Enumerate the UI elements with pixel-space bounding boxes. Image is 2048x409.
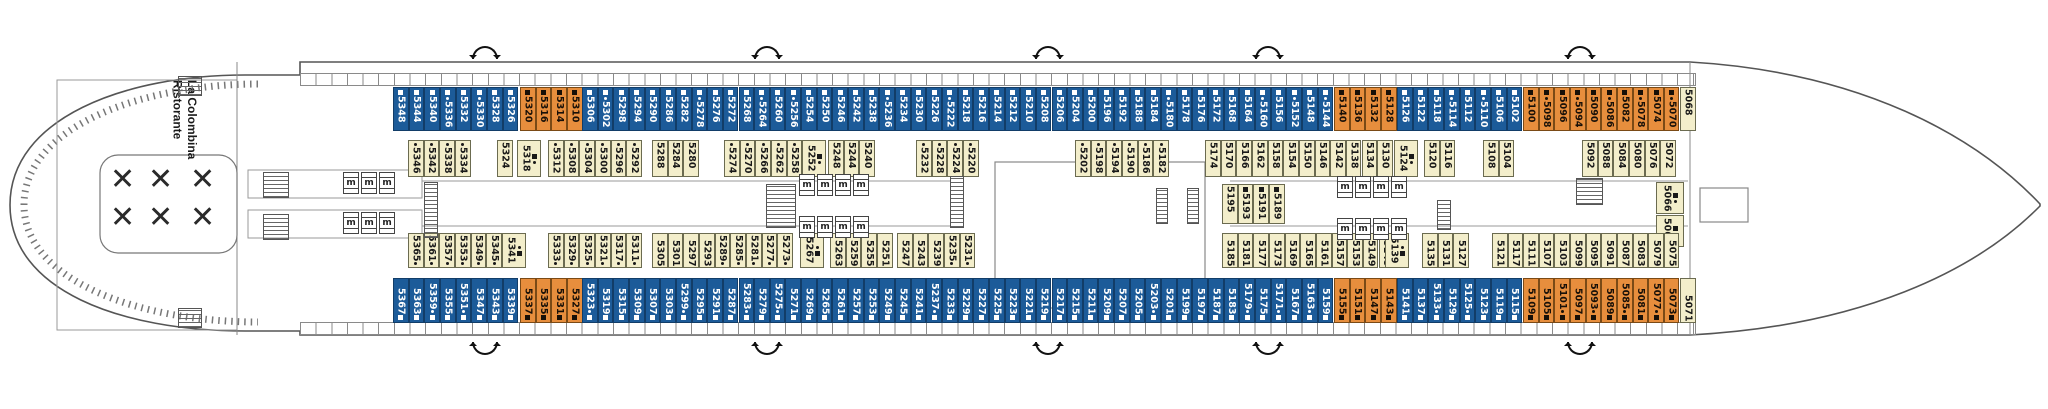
- cabin-number: 5267: [804, 237, 814, 263]
- dot-icon: [1144, 143, 1147, 146]
- cabin-number: 5209: [1102, 288, 1112, 314]
- dot-icon: [1261, 97, 1264, 100]
- cabin-number: 5218: [961, 96, 971, 122]
- square-icon: [477, 90, 482, 95]
- cabin-5289: 5289: [715, 233, 731, 268]
- cabin-icons: [697, 89, 702, 101]
- cabin-icons: [666, 314, 671, 321]
- square-icon: [1274, 187, 1279, 192]
- cabin-number: 5336: [443, 101, 453, 127]
- cabin-number: 5131: [1441, 240, 1451, 266]
- square-icon: [947, 315, 952, 320]
- cabin-5223: 5223: [1005, 278, 1021, 323]
- cabin-number: 5166: [1239, 142, 1249, 168]
- dot-icon: [1623, 310, 1626, 313]
- cabin-number: 5117: [1511, 240, 1521, 266]
- square-icon: [1622, 315, 1627, 320]
- cabin-icons: [1010, 314, 1015, 321]
- cabin-number: 5135: [1425, 240, 1435, 266]
- cabin-icons: [1496, 89, 1501, 96]
- cabin-5230: 5230: [911, 87, 927, 131]
- dot-icon: [617, 262, 620, 265]
- cabin-icons: [950, 261, 953, 266]
- dot-icon: [745, 310, 748, 313]
- elevator-icon: m: [1391, 218, 1407, 240]
- cabin-5325: 5325: [579, 233, 595, 268]
- cabin-icons: [587, 89, 592, 96]
- cabin-number: 5355: [443, 288, 453, 314]
- cabin-5164: 5164: [1239, 87, 1255, 131]
- cabin-5287: 5287: [723, 278, 739, 323]
- cabin-5070: 5070: [1664, 87, 1680, 131]
- cabin-number: 5108: [1486, 142, 1496, 168]
- cabin-5226: 5226: [926, 87, 942, 131]
- cabin-5209: 5209: [1098, 278, 1114, 323]
- cabin-5336: 5336: [440, 87, 456, 131]
- elevator-icon: m: [799, 174, 815, 196]
- cabin-number: 5169: [1288, 240, 1298, 266]
- cabin-5299: 5299: [676, 278, 692, 323]
- cabin-5266: 5266: [755, 140, 771, 177]
- dot-icon: [922, 143, 925, 146]
- cabin-number: 5256: [789, 101, 799, 127]
- cabin-number: 5203: [1148, 283, 1158, 309]
- cabin-5251: 5251: [877, 233, 893, 268]
- cabin-number: 5163: [1305, 283, 1315, 309]
- cabin-5339: 5339: [503, 278, 519, 323]
- cabin-number: 5292: [629, 147, 639, 173]
- square-icon: [1496, 315, 1501, 320]
- dot-icon: [969, 143, 972, 146]
- square-icon: [822, 315, 827, 320]
- cabin-icons: [1026, 314, 1031, 321]
- cabin-icons: [1409, 153, 1414, 165]
- cabin-5202: 5202: [1075, 140, 1091, 177]
- cabin-icons: [806, 89, 811, 96]
- cabin-5365: 5365: [408, 233, 424, 268]
- cabin-5111: 5111: [1523, 233, 1539, 268]
- square-icon: [1481, 90, 1486, 95]
- square-icon: [728, 315, 733, 320]
- cabin-icons: [1245, 89, 1250, 96]
- cabin-number: 5206: [1055, 96, 1065, 122]
- square-icon: [603, 90, 608, 95]
- cabin-number: 5325: [582, 235, 592, 261]
- cabin-icons: [1669, 89, 1674, 101]
- square-icon: [916, 315, 921, 320]
- cabin-number: 5294: [632, 96, 642, 122]
- cabin-icons: [1481, 89, 1486, 101]
- cabin-5096: 5096: [1554, 87, 1570, 131]
- cabin-icons: [1418, 89, 1423, 96]
- cabin-icons: [1434, 89, 1439, 96]
- cabin-5128: 5128: [1381, 87, 1397, 131]
- cabin-5184: 5184: [1145, 87, 1161, 131]
- square-icon: [728, 90, 733, 95]
- cabin-number: 5077: [1651, 283, 1661, 309]
- cabin-number: 5187: [1211, 288, 1221, 314]
- square-icon: [979, 315, 984, 320]
- cabin-icons: [1182, 314, 1187, 321]
- square-icon: [1400, 251, 1405, 256]
- cabin-icons: [838, 89, 843, 96]
- elevator-icon: m: [1373, 218, 1389, 240]
- square-icon: [430, 90, 435, 95]
- square-icon: [1307, 90, 1312, 95]
- cabin-number: 5363: [412, 288, 422, 314]
- dining-table-icon: ✕: [110, 203, 135, 233]
- cabin-5107: 5107: [1539, 233, 1555, 268]
- stairs-icon: [178, 308, 202, 328]
- square-icon: [557, 90, 562, 95]
- cabin-icons: [1243, 186, 1248, 193]
- cabin-number: 5201: [1164, 288, 1174, 314]
- cabin-5124: 5124: [1394, 140, 1418, 177]
- cabin-number: 5328: [490, 96, 500, 122]
- square-icon: [1673, 193, 1678, 198]
- square-icon: [1198, 90, 1203, 95]
- cabin-5146: 5146: [1315, 140, 1331, 177]
- square-icon: [572, 90, 577, 95]
- cabin-number: 5248: [831, 142, 841, 168]
- cabin-5106: 5106: [1491, 87, 1507, 131]
- cabin-5328: 5328: [487, 87, 503, 131]
- cabin-number: 5345: [489, 235, 499, 261]
- cabin-number: 5134: [1365, 142, 1375, 168]
- cabin-icons: [1465, 309, 1470, 321]
- square-icon: [1072, 315, 1077, 320]
- cabin-5079: 5079: [1648, 233, 1664, 268]
- cabin-icons: [461, 309, 466, 321]
- cabin-icons: [713, 314, 718, 321]
- dot-icon: [1670, 97, 1673, 100]
- stairs-icon: [178, 76, 202, 96]
- cabin-number: 5310: [570, 96, 580, 122]
- cabin-5163: 5163: [1302, 278, 1318, 323]
- cabin-number: 5112: [1463, 96, 1473, 122]
- cabin-5118: 5118: [1428, 87, 1444, 131]
- dot-icon: [586, 143, 589, 146]
- cabin-5305: 5305: [652, 233, 668, 268]
- cabin-icons: [1400, 245, 1405, 257]
- cabin-5288: 5288: [652, 140, 668, 177]
- cabin-5329: 5329: [564, 233, 580, 268]
- cabin-5168: 5168: [1224, 87, 1240, 131]
- cabin-icons: [1622, 89, 1627, 96]
- cabin-number: 5361: [427, 235, 437, 261]
- dot-icon: [1308, 310, 1311, 313]
- cabin-number: 5262: [774, 147, 784, 173]
- cabin-number: 5104: [1502, 142, 1512, 168]
- cabin-icons: [932, 309, 937, 321]
- cabin-5214: 5214: [989, 87, 1005, 131]
- cabin-number: 5179: [1242, 283, 1252, 309]
- cabin-5188: 5188: [1130, 87, 1146, 131]
- dot-icon: [461, 143, 464, 146]
- cabin-icons: [822, 89, 827, 96]
- cabin-number: 5150: [1302, 142, 1312, 168]
- square-icon: [1292, 90, 1297, 95]
- cabin-icons: [1575, 314, 1580, 321]
- square-icon: [666, 90, 671, 95]
- cabin-5343: 5343: [487, 278, 503, 323]
- cabin-number: 5332: [459, 96, 469, 122]
- dot-icon: [446, 97, 449, 100]
- cabin-number: 5249: [882, 288, 892, 314]
- cabin-5262: 5262: [771, 140, 787, 177]
- cabin-5260: 5260: [770, 87, 786, 131]
- cabin-icons: [557, 89, 562, 96]
- elevator-icon: m: [1373, 176, 1389, 198]
- cabin-icons: [414, 314, 419, 321]
- cabin-number: 5193: [1241, 193, 1251, 219]
- cabin-5215: 5215: [1067, 278, 1083, 323]
- cabin-icons: [1276, 309, 1281, 321]
- stairs-icon: [1576, 178, 1603, 205]
- cabin-icons: [815, 245, 820, 257]
- cabin-5133: 5133: [1428, 278, 1444, 323]
- square-icon: [1481, 315, 1486, 320]
- cabin-icons: [817, 153, 822, 165]
- square-icon: [1575, 90, 1580, 95]
- square-icon: [1166, 315, 1171, 320]
- cabin-icons: [1274, 186, 1279, 193]
- cabin-number: 5316: [539, 96, 549, 122]
- cabin-5348: 5348: [393, 87, 409, 131]
- cabin-icons: [1638, 89, 1643, 101]
- cabin-number: 5347: [474, 288, 484, 314]
- cabin-5283: 5283: [739, 278, 755, 323]
- square-icon: [461, 90, 466, 95]
- elevator-icon: m: [1337, 176, 1353, 198]
- elevator-icon: m: [343, 212, 359, 234]
- cabin-5172: 5172: [1208, 87, 1224, 131]
- cabin-number: 5075: [1667, 240, 1677, 266]
- cabin-5076: 5076: [1645, 140, 1661, 177]
- dot-icon: [784, 262, 787, 265]
- cabin-5103: 5103: [1554, 233, 1570, 268]
- square-icon: [744, 315, 749, 320]
- cabin-number: 5123: [1478, 288, 1488, 314]
- cabin-number: 5326: [506, 96, 516, 122]
- square-icon: [744, 90, 749, 95]
- cabin-5293: 5293: [699, 233, 715, 268]
- square-icon: [525, 90, 530, 95]
- square-icon: [1355, 90, 1360, 95]
- cabin-number: 5237: [929, 283, 939, 309]
- cabin-5199: 5199: [1177, 278, 1193, 323]
- cabin-number: 5265: [820, 288, 830, 314]
- cabin-5361: 5361: [424, 233, 440, 268]
- square-icon: [445, 90, 450, 95]
- cabin-icons: [619, 314, 624, 321]
- dot-icon: [1152, 310, 1155, 313]
- cabin-number: 5190: [1125, 147, 1135, 173]
- cabin-number: 5343: [490, 288, 500, 314]
- cabin-icons: [1418, 314, 1423, 321]
- cabin-5105: 5105: [1539, 278, 1555, 323]
- cabin-icons: [932, 89, 937, 96]
- square-icon: [822, 90, 827, 95]
- cabin-number: 5301: [671, 240, 681, 266]
- square-icon: [806, 90, 811, 95]
- dot-icon: [446, 143, 449, 146]
- square-icon: [1418, 315, 1423, 320]
- cabin-5367: 5367: [393, 278, 409, 323]
- cabin-5127: 5127: [1453, 233, 1469, 268]
- dot-icon: [698, 97, 701, 100]
- cabin-number: 5330: [474, 101, 484, 127]
- cabin-number: 5189: [1272, 193, 1282, 219]
- dot-icon: [1113, 143, 1116, 146]
- cabin-5216: 5216: [973, 87, 989, 131]
- square-icon: [994, 90, 999, 95]
- cabin-icons: [1057, 314, 1062, 321]
- dot-icon: [948, 97, 951, 100]
- cabin-number: 5198: [1094, 147, 1104, 173]
- cabin-icons: [838, 314, 843, 321]
- cabin-icons: [398, 314, 403, 321]
- cabin-icons: [822, 314, 827, 321]
- cabin-5114: 5114: [1444, 87, 1460, 131]
- cabin-5183: 5183: [1224, 278, 1240, 323]
- cabin-icons: [885, 89, 890, 101]
- square-icon: [603, 315, 608, 320]
- cabin-icons: [477, 89, 482, 101]
- cabin-number: 5261: [835, 288, 845, 314]
- stairs-icon: [263, 214, 289, 240]
- cabin-icons: [477, 261, 480, 266]
- cabin-5179: 5179: [1239, 278, 1255, 323]
- cabin-number: 5215: [1070, 288, 1080, 314]
- cabin-5205: 5205: [1130, 278, 1146, 323]
- cabin-5196: 5196: [1098, 87, 1114, 131]
- cabin-icons: [650, 89, 655, 96]
- dot-icon: [777, 143, 780, 146]
- square-icon: [900, 90, 905, 95]
- cabin-number: 5127: [1456, 240, 1466, 266]
- cabin-number: 5124: [1398, 145, 1408, 171]
- cabin-number: 5259: [849, 240, 859, 266]
- cabin-number: 5228: [935, 147, 945, 173]
- cabin-5278: 5278: [692, 87, 708, 131]
- cabin-icons: [744, 89, 749, 96]
- cabin-number: 5103: [1557, 240, 1567, 266]
- square-icon: [414, 90, 419, 95]
- cabin-icons: [759, 314, 764, 321]
- cabin-5166: 5166: [1236, 140, 1252, 177]
- square-icon: [815, 251, 820, 256]
- cabin-5087: 5087: [1617, 233, 1633, 268]
- square-icon: [681, 90, 686, 95]
- cabin-number: 5342: [427, 147, 437, 173]
- square-icon: [838, 90, 843, 95]
- cabin-icons: [1654, 309, 1659, 321]
- square-icon: [1088, 90, 1093, 95]
- cabin-number: 5222: [945, 101, 955, 127]
- cabin-5224: 5224: [947, 140, 963, 177]
- dot-icon: [1655, 310, 1658, 313]
- cabin-number: 5220: [966, 147, 976, 173]
- cabin-icons: [1026, 89, 1031, 96]
- cabin-number: 5233: [945, 288, 955, 314]
- cabin-number: 5338: [442, 147, 452, 173]
- cabin-5117: 5117: [1508, 233, 1524, 268]
- cabin-number: 5211: [1086, 288, 1096, 314]
- stairs-icon: [1187, 188, 1199, 224]
- cabin-5303: 5303: [660, 278, 676, 323]
- cabin-5241: 5241: [911, 278, 927, 323]
- cabin-icons: [1229, 89, 1234, 96]
- square-icon: [697, 90, 702, 95]
- cabin-5144: 5144: [1318, 87, 1334, 131]
- cabin-number: 5327: [570, 288, 580, 314]
- square-icon: [1259, 187, 1264, 192]
- square-icon: [791, 90, 796, 95]
- cabin-5152: 5152: [1286, 87, 1302, 131]
- cabin-number: 5157: [1335, 240, 1345, 266]
- cabin-number: 5210: [1023, 96, 1033, 122]
- cabin-5198: 5198: [1091, 140, 1107, 177]
- cabin-number: 5246: [835, 96, 845, 122]
- cabin-icons: [541, 314, 546, 321]
- cabin-5125: 5125: [1460, 278, 1476, 323]
- square-icon: [1591, 315, 1596, 320]
- cabin-number: 5295: [695, 288, 705, 314]
- square-icon: [1041, 315, 1046, 320]
- cabin-number: 5242: [851, 96, 861, 122]
- cabin-5323: 5323: [582, 278, 598, 323]
- square-icon: [1418, 90, 1423, 95]
- cabin-5132: 5132: [1365, 87, 1381, 131]
- cabin-5116: 5116: [1440, 140, 1456, 177]
- cabin-icons: [493, 261, 496, 266]
- cabin-number: 5188: [1133, 96, 1143, 122]
- cabin-number: 5339: [506, 288, 516, 314]
- cabin-5331: 5331: [551, 278, 567, 323]
- stairs-icon: [1156, 188, 1168, 224]
- cabin-icons: [1323, 89, 1328, 101]
- cabin-icons: [1259, 186, 1264, 193]
- cabin-number: 5298: [616, 96, 626, 122]
- cabin-icons: [1119, 89, 1124, 96]
- cabin-5173: 5173: [1269, 233, 1285, 268]
- cabin-number: 5280: [686, 142, 696, 168]
- cabin-5212: 5212: [1005, 87, 1021, 131]
- dot-icon: [1545, 97, 1548, 100]
- cabin-icons: [768, 261, 771, 266]
- cabin-5180: 5180: [1161, 87, 1177, 131]
- square-icon: [1135, 315, 1140, 320]
- square-icon: [885, 90, 890, 95]
- dot-icon: [1450, 97, 1453, 100]
- square-icon: [775, 315, 780, 320]
- cabin-icons: [1339, 314, 1344, 321]
- square-icon: [398, 315, 403, 320]
- cabin-5137: 5137: [1413, 278, 1429, 323]
- cabin-icons: [1245, 309, 1250, 321]
- cabin-5098: 5098: [1539, 87, 1555, 131]
- cabin-number: 5132: [1368, 96, 1378, 122]
- cabin-5290: 5290: [645, 87, 661, 131]
- cabin-number: 5317: [614, 235, 624, 261]
- cabin-number: 5344: [412, 96, 422, 122]
- cabin-5285: 5285: [730, 233, 746, 268]
- cabin-number: 5111: [1526, 240, 1536, 266]
- cabin-5197: 5197: [1192, 278, 1208, 323]
- elevator-icon: m: [835, 216, 851, 238]
- cabin-5219: 5219: [1036, 278, 1052, 323]
